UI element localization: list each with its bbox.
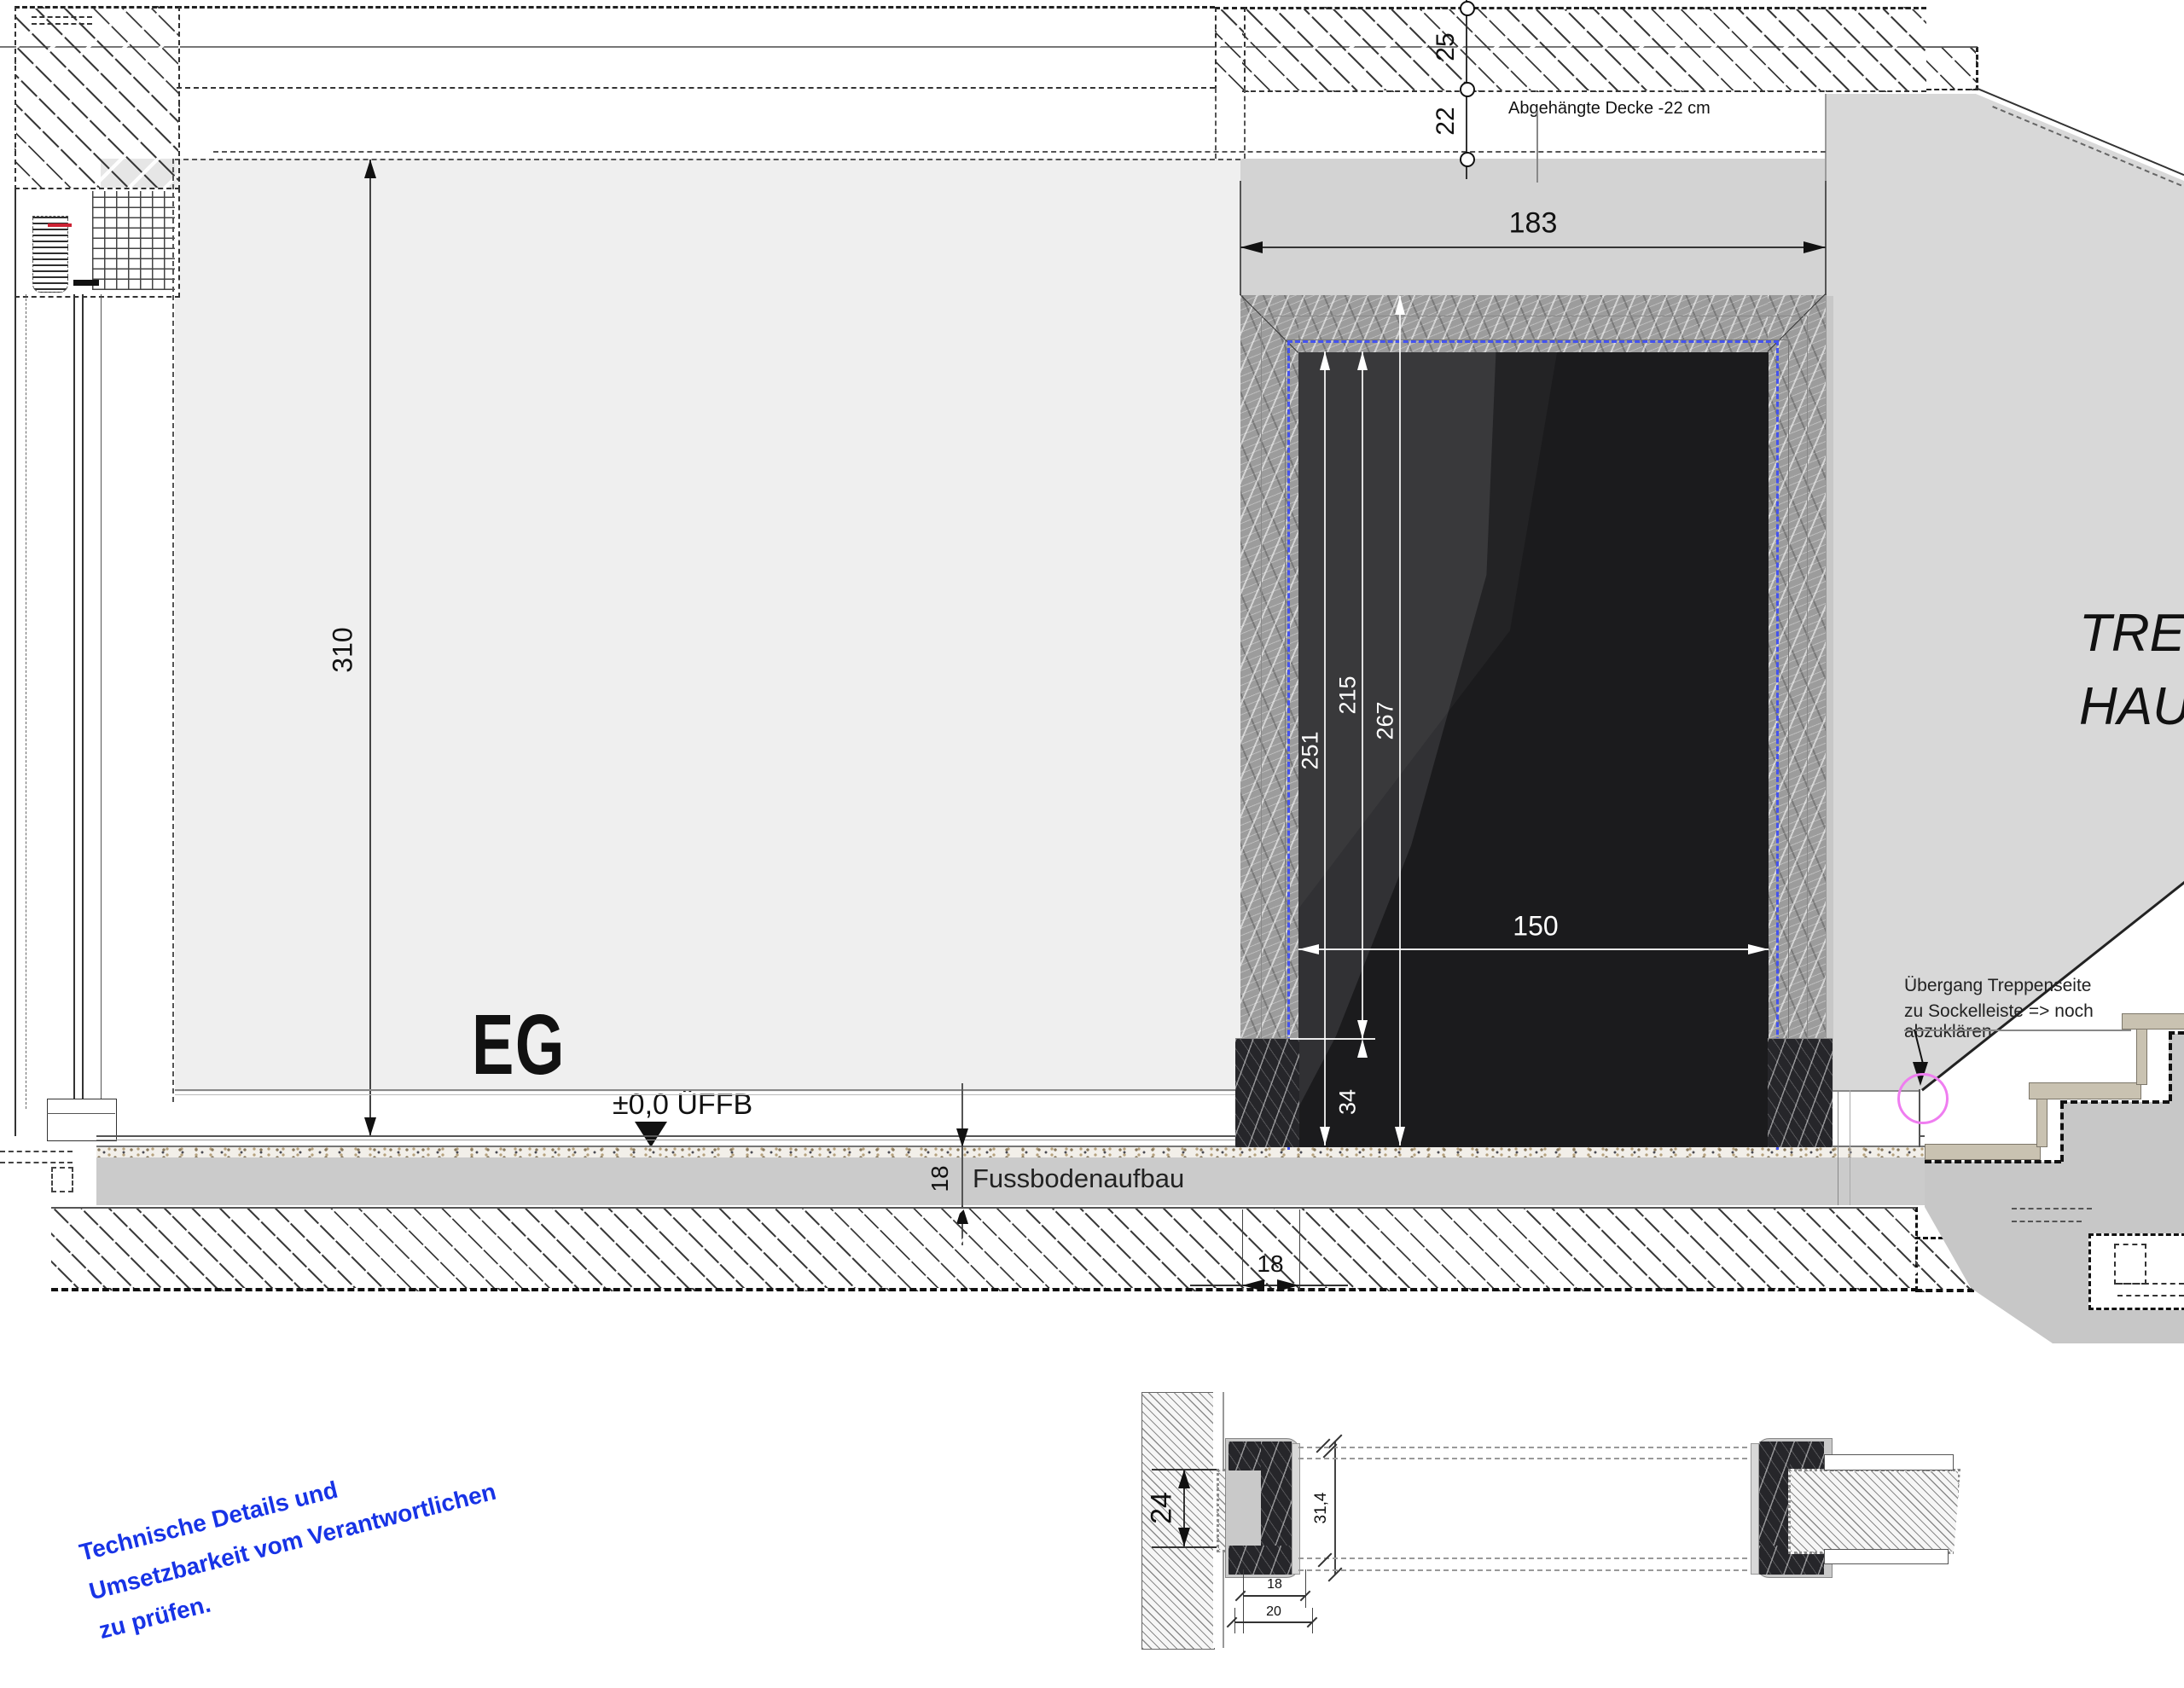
frame-seam-left-a: [1261, 316, 1262, 1147]
dim-door-h-clear: 251: [1298, 731, 1324, 769]
ceiling-dim-marker-top: [1460, 1, 1475, 16]
stair-landing-dash-a: [2117, 1283, 2184, 1285]
base-block-arrow-up: [1357, 1039, 1368, 1058]
stair-raw-edge-c: [2060, 1100, 2169, 1104]
door-h-base-arrow-top: [1357, 351, 1368, 370]
door-h-clear-line: [1324, 351, 1326, 1146]
exterior-step-dash: [51, 1167, 73, 1192]
corner-line-a: [1838, 1090, 1838, 1205]
floor-note-label: Fussbodenaufbau: [973, 1163, 1184, 1194]
stair-landing-pocket-inner: [2114, 1244, 2146, 1285]
room-label: EG: [472, 996, 566, 1094]
door-h-clear-arrow-bottom: [1320, 1127, 1330, 1146]
dim-door-h-outer: 267: [1373, 701, 1399, 740]
stair-raw-edge-d: [2169, 1033, 2172, 1101]
detail-wall-right-band-bottom: [1824, 1549, 1949, 1564]
stair-note-line2: zu Sockelleiste => noch abzuklären: [1904, 1001, 2184, 1042]
door-dim-line: [1240, 247, 1826, 248]
corner-line-b: [1850, 1090, 1850, 1205]
wall-column-dashed-extension: [1215, 88, 1246, 159]
wall-return-arrow-right: [1277, 1279, 1299, 1291]
detail-smalldim-ext-a: [1243, 1569, 1244, 1633]
detail-wall-right-band-top: [1824, 1454, 1954, 1470]
dim-wall-return: 18: [1257, 1250, 1283, 1278]
stair-landing-dash-b: [2117, 1295, 2184, 1296]
dim-ceiling-void: 22: [1432, 107, 1461, 135]
window-frame-line-outer: [15, 188, 16, 1136]
architectural-section-drawing: 25 22 Abgehängte Decke -22 cm 310 EG ±0,…: [0, 0, 2184, 1688]
frame-seam-right-a: [1807, 316, 1808, 1147]
door-centerline-tick: [1536, 111, 1538, 183]
dim-detail-small-a: 18: [1267, 1577, 1282, 1592]
frame-seam-left-b: [1285, 339, 1286, 1147]
door-h-clear-arrow-top: [1320, 351, 1330, 370]
detail-leaf-dash-3: [1298, 1557, 1764, 1559]
ffb-mid-line: [96, 1140, 1240, 1140]
detail-wall-right: [1788, 1469, 1960, 1554]
stairwell-name-line2: HAUS: [2079, 670, 2184, 744]
slab-bottom-dashed: [177, 87, 1215, 89]
stairwell-name: TREPPEN HAUS: [2079, 597, 2184, 744]
wall-return-ext-b: [1299, 1209, 1300, 1291]
frame-seam-top: [1261, 316, 1808, 316]
door-dim-ext-left: [1240, 181, 1241, 295]
detail-314-line: [1334, 1441, 1336, 1575]
door-clear-width-arrow-left: [1298, 944, 1319, 954]
door-clear-width-arrow-right: [1748, 944, 1769, 954]
frame-seam-right-b: [1788, 339, 1789, 1147]
dim-door-width-clear: 150: [1513, 911, 1558, 943]
stair-riser-1: [2036, 1098, 2047, 1147]
dim-room-height: 310: [328, 627, 359, 672]
ceiling-dim-marker-bottom: [1460, 152, 1475, 167]
stair-note-line1: Übergang Treppenseite: [1904, 976, 2092, 996]
room-height-dim-line: [369, 160, 371, 1136]
stair-hidden-dash-b: [2012, 1221, 2082, 1222]
base-block-right-topline: [1768, 1038, 1833, 1039]
wall-return-dim-line: [1190, 1285, 1348, 1286]
door-leaf-reflection-soft: [1298, 352, 1769, 1147]
ceiling-note-label: Abgehängte Decke -22 cm: [1508, 99, 1711, 119]
detail-18-line: [1243, 1595, 1305, 1597]
detail-jamb-left-lip: [1292, 1443, 1300, 1575]
slab-hatch-right: [1242, 7, 1926, 92]
left-wall-hatch: [15, 6, 180, 190]
dim-door-h-base: 215: [1335, 676, 1362, 714]
window-mullion-a: [73, 294, 75, 1137]
stairwell-name-line1: TREPPEN: [2079, 597, 2184, 670]
dim-door-width-outer: 183: [1509, 207, 1558, 241]
door-dim-ext-right: [1825, 181, 1827, 295]
stair-note-underline: [1904, 1030, 2131, 1031]
detail-24-arrow-top: [1178, 1470, 1190, 1488]
dim-detail-frame-depth: 31,4: [1312, 1493, 1331, 1524]
dim-base-block: 34: [1335, 1089, 1362, 1115]
stair-hidden-dash-a: [2012, 1208, 2092, 1209]
eg-room-fill: [175, 159, 1240, 1092]
room-height-arrow-bottom: [364, 1117, 376, 1136]
level-marker-label: ±0,0 ÜFFB: [613, 1088, 752, 1122]
detail-leaf-dash-1: [1298, 1447, 1764, 1448]
highlight-circle-magenta: [1897, 1073, 1949, 1124]
stairwell-wall-fill: [1826, 94, 2184, 1090]
base-block-tick: [1290, 1038, 1375, 1040]
skirting-top-line: [175, 1089, 1240, 1091]
detail-24-arrow-bottom: [1178, 1528, 1190, 1546]
level-marker-triangle: [635, 1122, 667, 1147]
wall-return-ext-a: [1242, 1209, 1243, 1291]
slab-top-dashed: [177, 6, 1215, 9]
ground-hatch: [51, 1207, 1918, 1291]
window-mullion-c: [101, 294, 102, 1137]
dim-detail-wall: 24: [1146, 1492, 1179, 1524]
door-h-base-arrow-bottom: [1357, 1020, 1368, 1039]
stair-raw-edge-a: [1925, 1160, 2061, 1163]
detail-20-line: [1234, 1621, 1312, 1623]
wall-column-above-door: [1215, 7, 1246, 90]
suspended-ceiling-dashed: [213, 151, 1826, 153]
window-frame-dash: [26, 294, 27, 1109]
stair-raw-edge-b: [2060, 1102, 2064, 1162]
detail-smalldim-ext-b: [1305, 1569, 1306, 1608]
stair-tread-1: [1925, 1144, 2041, 1160]
frame-shadow: [1827, 296, 1833, 1147]
door-h-outer-line: [1399, 296, 1401, 1146]
door-clear-width-line: [1298, 948, 1769, 950]
roller-red-accent: [48, 223, 72, 227]
exterior-grade-dash-b: [0, 1162, 73, 1163]
roller-shutter-coil: [32, 216, 68, 293]
door-dim-arrow-right: [1804, 241, 1826, 253]
room-height-arrow-top: [364, 160, 376, 178]
ceiling-dim-marker-mid: [1460, 82, 1475, 97]
window-head-bar: [73, 280, 99, 286]
stair-tread-2: [2029, 1082, 2141, 1099]
dim-slab-thickness: 25: [1432, 32, 1461, 61]
detail-leaf-tick-c: [1318, 1553, 1333, 1568]
wall-inner-face-dash: [172, 159, 175, 1102]
door-dim-arrow-left: [1240, 241, 1263, 253]
wall-return-arrow-left: [1242, 1279, 1264, 1291]
slab-step-hatch: [1926, 47, 1978, 90]
left-wall-inner-dash: [32, 16, 92, 25]
review-note: Technische Details und Umsetzbarkeit vom…: [75, 1432, 510, 1650]
door-h-outer-arrow-bottom: [1395, 1127, 1405, 1146]
skirting-top-line2: [175, 1094, 1240, 1095]
dim-detail-small-b: 20: [1266, 1604, 1281, 1620]
detail-leaf-dash-4: [1298, 1569, 1764, 1571]
dim-floor-buildup: 18: [926, 1165, 954, 1192]
door-h-outer-arrow-top: [1395, 296, 1405, 315]
window-sill-line: [47, 1113, 115, 1114]
floor-dim-arrow-down: [956, 1128, 968, 1147]
base-block-left: [1235, 1039, 1299, 1147]
door-leaf: [1298, 352, 1769, 1147]
detail-jamb-left-flange-bottom: [1228, 1546, 1292, 1575]
detail-jamb-right-lip: [1751, 1443, 1759, 1575]
window-mullion-b: [82, 294, 84, 1137]
detail-leaf-dash-2: [1298, 1458, 1764, 1459]
base-block-right: [1768, 1039, 1833, 1147]
perforated-brick-grid: [92, 191, 175, 290]
door-h-base-line: [1362, 351, 1363, 1039]
exterior-grade-dash-a: [0, 1151, 73, 1152]
